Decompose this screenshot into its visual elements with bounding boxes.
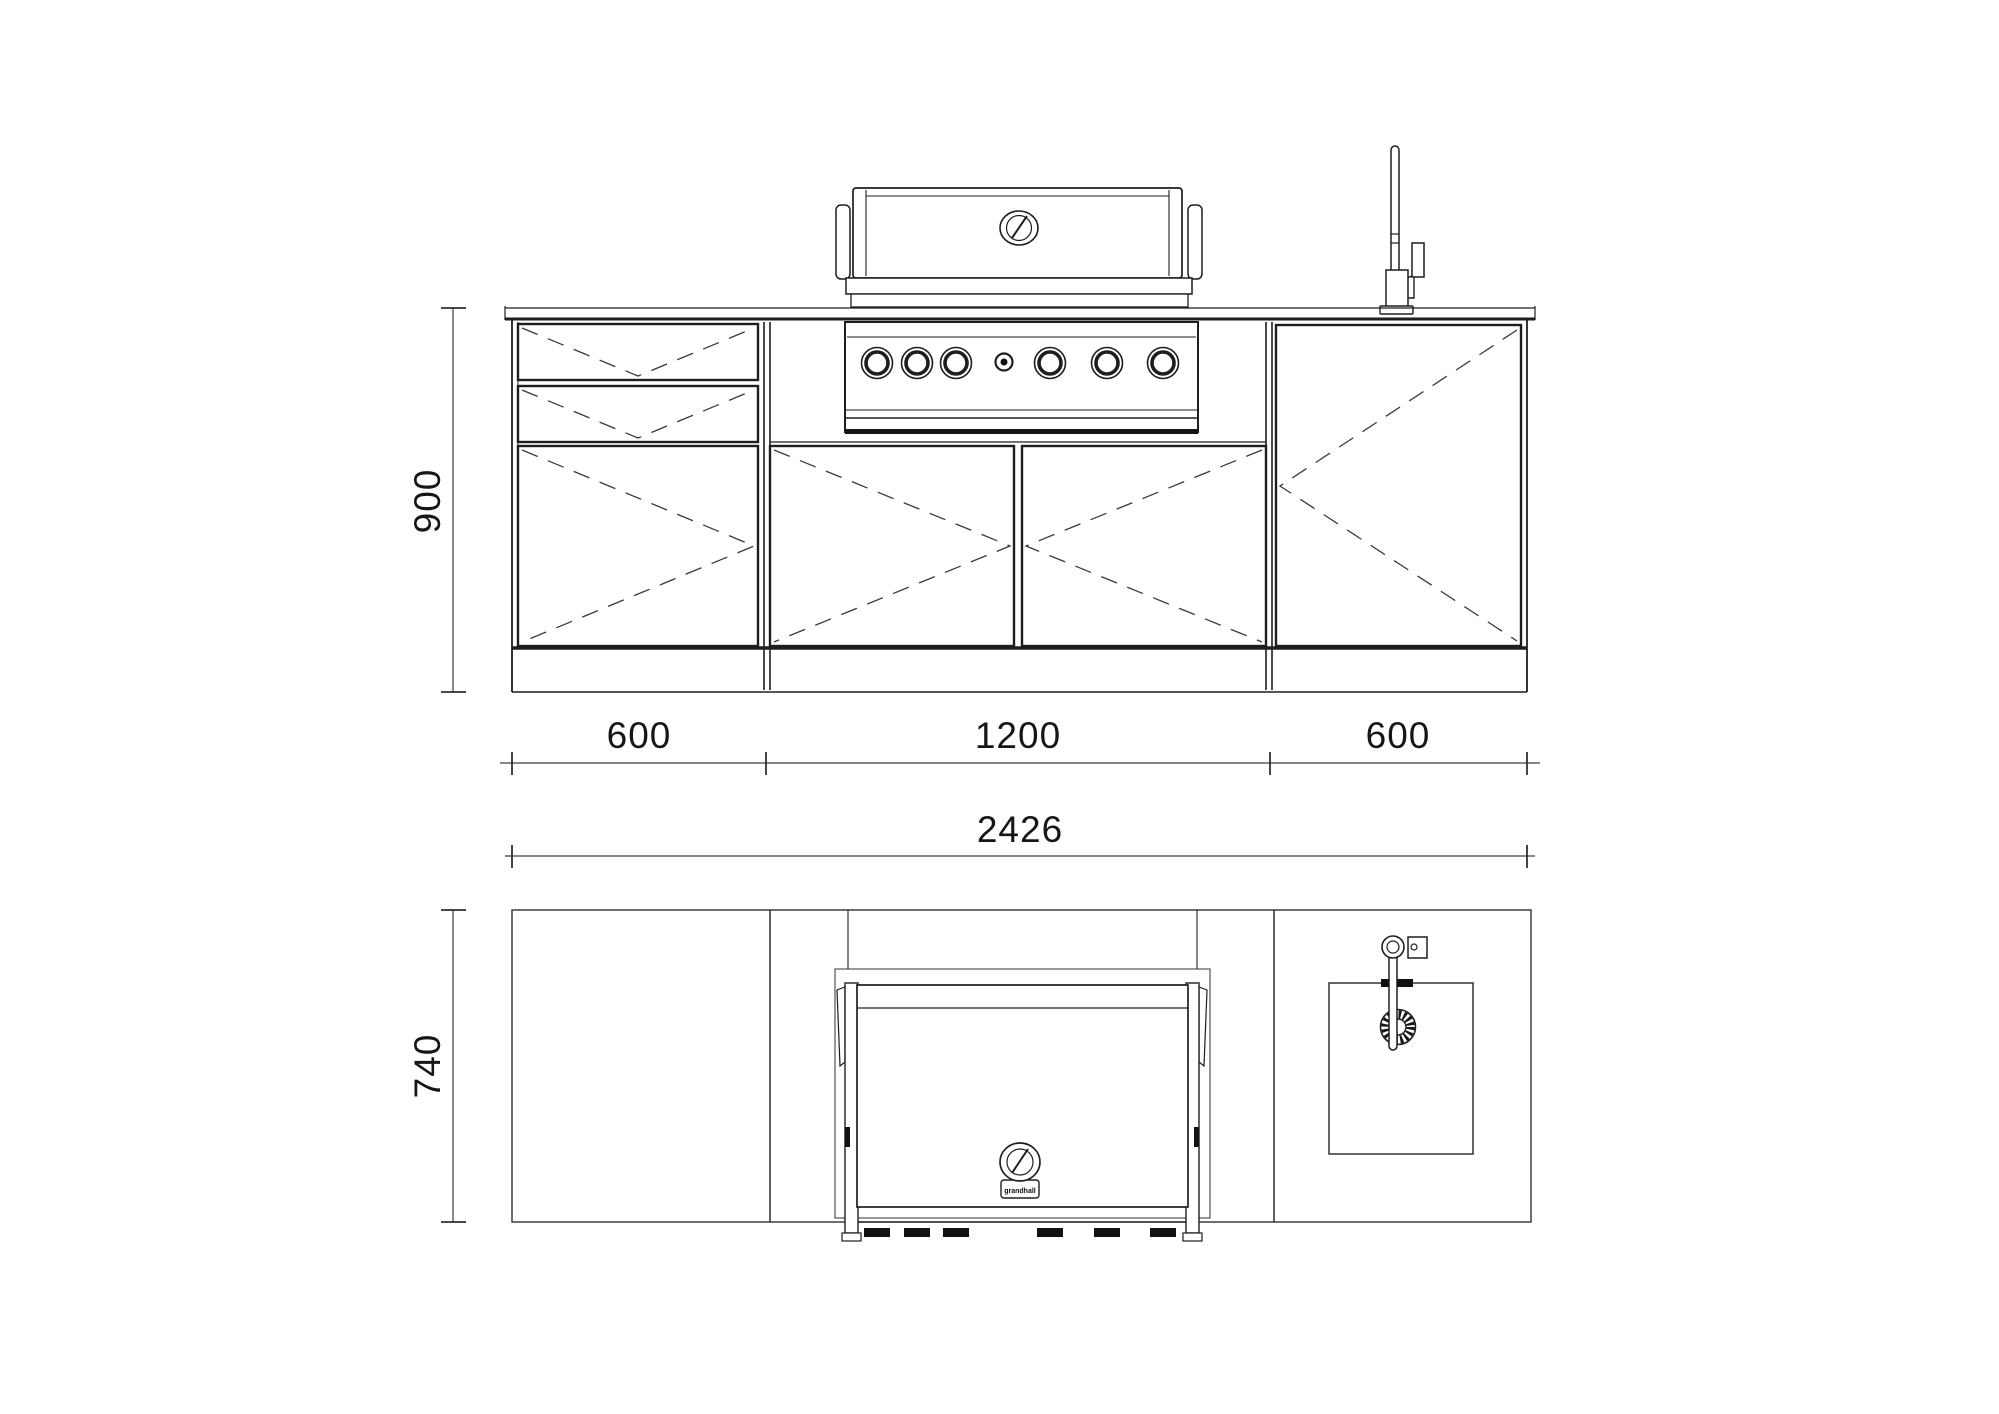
faucet-icon: [1380, 146, 1424, 314]
module-centre: [770, 322, 1266, 646]
grill-hood: grandhall: [836, 188, 1202, 307]
door-front: [518, 446, 758, 646]
door-front-tall: [1276, 325, 1521, 646]
dim-label-height: 900: [407, 469, 448, 534]
knob-mark: [943, 1228, 969, 1237]
door-front: [770, 446, 1014, 646]
faucet-base-plate: [1380, 306, 1413, 314]
faucet-lever: [1412, 243, 1424, 277]
grill-foot-right: [1183, 1233, 1202, 1241]
faucet-body: [1386, 270, 1408, 307]
hinge-mark-left: [845, 1127, 850, 1147]
module-left: [518, 324, 758, 646]
grill-brand-label: grandhall: [1004, 1188, 1036, 1195]
hood-handle-right: [1188, 205, 1202, 279]
drain-starburst-icon: [1381, 1010, 1416, 1045]
knob-marks: [864, 1228, 1176, 1237]
sink-basin: [1329, 983, 1473, 1154]
door-swing-dashes: [1026, 450, 1262, 642]
door-front: [1022, 446, 1266, 646]
drawer-front: [518, 386, 758, 442]
dimension-segments: 600 1200 600: [500, 715, 1540, 775]
drawer-swing-dashes: [522, 390, 754, 438]
dim-label-depth: 740: [407, 1034, 448, 1099]
thermometer-plan: grandhall: [1000, 1143, 1040, 1198]
door-swing-dashes: [774, 450, 1010, 642]
door-swing-dashes: [1280, 330, 1517, 641]
grill-foot-left: [842, 1233, 861, 1241]
drawer-swing-dashes: [522, 328, 754, 376]
hood-handle-left: [836, 205, 850, 279]
technical-drawing-sheet: grandhall: [0, 0, 1999, 1414]
front-elevation: grandhall: [505, 146, 1535, 692]
dim-label-segment-right: 600: [1366, 715, 1431, 756]
grill-rail-left: [845, 983, 858, 1233]
dimension-height-900: 900: [407, 308, 466, 692]
dim-label-segment-left: 600: [607, 715, 672, 756]
tap-base-plan: [1382, 936, 1404, 958]
hood-lower-band: [851, 294, 1188, 307]
knob-mark: [1094, 1228, 1120, 1237]
dimension-depth-740: 740: [407, 910, 466, 1222]
door-swing-dashes: [522, 450, 754, 642]
faucet-spout: [1391, 146, 1399, 274]
knob-mark: [904, 1228, 930, 1237]
knob-mark: [1150, 1228, 1176, 1237]
dim-label-total: 2426: [977, 809, 1063, 850]
ignitor-button-dot: [1001, 359, 1008, 366]
dimension-total-2426: 2426: [505, 809, 1535, 868]
dim-label-segment-centre: 1200: [975, 715, 1061, 756]
hinge-mark-right: [1194, 1127, 1199, 1147]
plan-view: grandhall: [512, 910, 1531, 1241]
knob-mark: [864, 1228, 890, 1237]
tap-spout-plan: [1389, 944, 1397, 1050]
grill-base-bar: [845, 429, 1198, 434]
hood-lip-band: [846, 278, 1192, 294]
knob-mark: [1037, 1228, 1063, 1237]
module-right: [1276, 325, 1521, 646]
grill-control-panel: [845, 322, 1198, 432]
drawer-front: [518, 324, 758, 380]
